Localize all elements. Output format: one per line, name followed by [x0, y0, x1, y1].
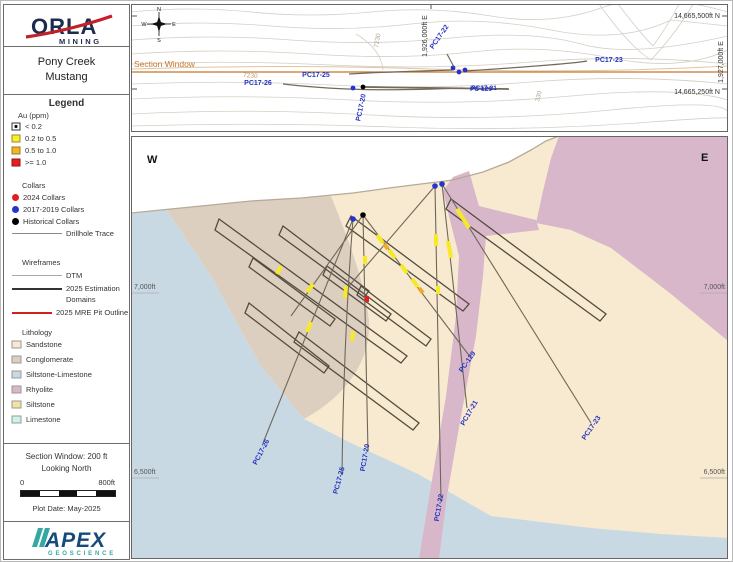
plot-date-text: Plot Date: May-2025 — [4, 504, 129, 513]
compass-n: N — [157, 7, 161, 13]
rhyolite-swatch — [11, 385, 22, 394]
scale-bar-segment — [96, 491, 115, 496]
cross-section-panel: PC17-26 PC17-25 PC17-20 PC17-22 PC17-21 … — [131, 136, 728, 559]
legend-lithology-heading: Lithology — [22, 328, 129, 337]
plot-sheet: ORLA MINING Pony Creek Mustang Legend Au… — [0, 0, 733, 562]
scale-max-label: 800ft — [98, 478, 115, 487]
lithology-label: Rhyolite — [26, 385, 53, 394]
siltstone-limestone-swatch — [11, 370, 22, 379]
collar-label: 2017-2019 Collars — [23, 205, 84, 214]
trace-label: Drillhole Trace — [66, 229, 114, 238]
au-lt02-icon — [11, 122, 21, 131]
lithology-row: Siltstone-Limestone — [11, 370, 92, 379]
lithology-row: Limestone — [11, 415, 61, 424]
apex-geoscience-logo: APEX GEOSCIENCE — [4, 522, 129, 557]
lithology-label: Limestone — [26, 415, 61, 424]
scale-bar — [20, 490, 116, 497]
section-window-label: Section Window — [134, 59, 196, 69]
scale-bar-segment — [21, 491, 40, 496]
section-collar-blue — [350, 216, 356, 222]
collar-historical-icon — [12, 218, 19, 225]
legend-au-class-row: < 0.2 — [11, 122, 42, 131]
plan-collar-blue — [351, 86, 356, 91]
compass-w: W — [141, 22, 147, 28]
plan-label-pc17-23: PC17-23 — [595, 57, 623, 64]
legend-estimation-row: 2025 Estimation — [12, 284, 120, 293]
au-class-label: 0.2 to 0.5 — [25, 134, 56, 143]
contour-label-7230: 7230 — [243, 72, 258, 80]
legend-heading: Legend — [4, 98, 129, 109]
legend-box: Legend Au (ppm) < 0.2 0.2 to 0.5 0.5 to … — [4, 95, 129, 444]
legend-collars-heading: Collars — [22, 181, 129, 190]
scale-min-label: 0 — [20, 478, 24, 487]
legend-pit-row: 2025 MRE Pit Outline — [12, 308, 128, 317]
elev-7000-right: 7,000ft — [704, 284, 725, 291]
legend-au-class-row: 0.2 to 0.5 — [11, 134, 56, 143]
au-class-label: >= 1.0 — [25, 158, 46, 167]
section-collar-historical — [360, 212, 366, 218]
section-west-label: W — [147, 154, 158, 166]
looking-direction-text: Looking North — [4, 464, 129, 473]
plan-collar-blue — [463, 68, 468, 73]
legend-dtm-row: DTM — [12, 271, 82, 280]
drillhole-trace-line-sample — [12, 233, 62, 234]
section-collar-blue — [439, 181, 445, 187]
scale-bar-segment — [40, 491, 59, 496]
plan-label-pc17-25: PC17-25 — [302, 72, 330, 79]
estimation-label-line2: Domains — [66, 295, 129, 304]
lithology-label: Sandstone — [26, 340, 62, 349]
compass-s: S — [157, 38, 161, 44]
northing-label-bottom: 14,665,250ft N — [674, 89, 720, 96]
lithology-row: Siltstone — [11, 400, 55, 409]
apex-logo-subtext: GEOSCIENCE — [48, 551, 116, 557]
collar-label: Historical Collars — [23, 217, 79, 226]
sandstone-swatch — [11, 340, 22, 349]
legend-au-class-row: >= 1.0 — [11, 158, 46, 167]
scale-bar-segment — [77, 491, 96, 496]
easting-label-right: 1,927,000ft E — [718, 41, 725, 83]
plan-label-pc17-21: PC17-21 — [471, 85, 497, 92]
dtm-line-sample — [12, 275, 62, 276]
lithology-row: Rhyolite — [11, 385, 53, 394]
section-east-label: E — [701, 152, 708, 164]
elev-7000-left: 7,000ft — [134, 284, 155, 291]
collar-2024-icon — [12, 194, 19, 201]
company-logo-box: ORLA MINING — [4, 5, 129, 47]
siltstone-swatch — [11, 400, 22, 409]
project-name-line2: Mustang — [4, 71, 129, 83]
lithology-row: Conglomerate — [11, 355, 73, 364]
elev-6500-right: 6,500ft — [704, 469, 725, 476]
plan-collar-blue — [457, 70, 462, 75]
lithology-label: Siltstone — [26, 400, 55, 409]
collar-label: 2024 Collars — [23, 193, 65, 202]
au-class-label: < 0.2 — [25, 122, 42, 131]
lithology-label: Siltstone-Limestone — [26, 370, 92, 379]
lithology-label: Conglomerate — [26, 355, 73, 364]
pit-outline-line-sample — [12, 312, 52, 314]
section-window-text: Section Window: 200 ft — [4, 452, 129, 461]
legend-collar-row: 2024 Collars — [12, 193, 65, 202]
plan-collar-historical — [361, 85, 366, 90]
elev-6500-left: 6,500ft — [134, 469, 155, 476]
limestone-swatch — [11, 415, 22, 424]
legend-au-class-row: 0.5 to 1.0 — [11, 146, 56, 155]
northing-label-top: 14,665,500ft N — [674, 13, 720, 20]
au-ge10-swatch — [11, 158, 21, 167]
plan-label-pc17-26: PC17-26 — [244, 80, 272, 87]
plan-view-panel: Section Window PC17-26 PC17-25 PC17-20 P… — [131, 4, 728, 132]
orla-logo-subtext: MINING — [59, 37, 102, 46]
lithology-row: Sandstone — [11, 340, 62, 349]
sidebar: ORLA MINING Pony Creek Mustang Legend Au… — [3, 4, 130, 560]
collar-2017-icon — [12, 206, 19, 213]
project-title-box: Pony Creek Mustang — [4, 47, 129, 95]
legend-collar-row: 2017-2019 Collars — [12, 205, 84, 214]
section-collar-blue — [432, 183, 438, 189]
conglomerate-swatch — [11, 355, 22, 364]
orla-mining-logo: ORLA MINING — [4, 5, 129, 46]
project-name-line1: Pony Creek — [4, 56, 129, 68]
legend-trace-row: Drillhole Trace — [12, 229, 114, 238]
au-05-10-swatch — [11, 146, 21, 155]
estimation-line-sample — [12, 288, 62, 290]
legend-wireframes-heading: Wireframes — [22, 258, 129, 267]
au-02-05-swatch — [11, 134, 21, 143]
scale-bar-segment — [59, 491, 78, 496]
easting-label-mid: 1,926,000ft E — [422, 15, 429, 57]
pit-outline-label: 2025 MRE Pit Outline — [56, 308, 128, 317]
apex-logo-text: APEX — [44, 529, 107, 552]
au-class-label: 0.5 to 1.0 — [25, 146, 56, 155]
dtm-label: DTM — [66, 271, 82, 280]
estimation-label-line1: 2025 Estimation — [66, 284, 120, 293]
legend-collar-row: Historical Collars — [12, 217, 79, 226]
section-info-box: Section Window: 200 ft Looking North 0 8… — [4, 444, 129, 522]
legend-au-heading: Au (ppm) — [18, 111, 129, 120]
apex-logo-box: APEX GEOSCIENCE — [4, 522, 129, 558]
compass-e: E — [172, 22, 176, 28]
plan-collar-blue — [451, 66, 456, 71]
